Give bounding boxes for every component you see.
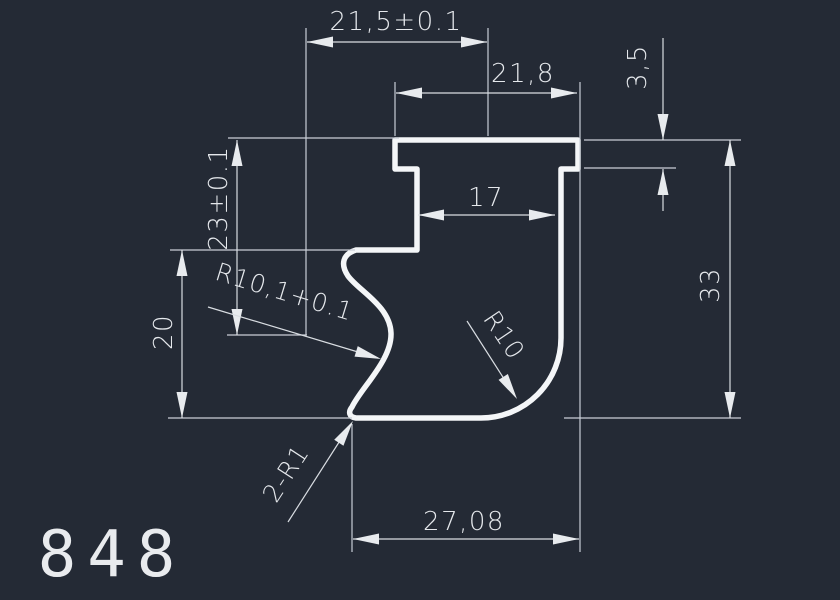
dim-top-width: 21,5±0.1 xyxy=(307,7,487,48)
dim-bottom-width-text: 27,08 xyxy=(423,507,505,537)
dim-flange-width-text: 21,8 xyxy=(491,59,555,89)
cad-model-space: 21,5±0.1 21,8 17 27,08 3,5 23±0.1 xyxy=(0,0,840,600)
dim-inner-width-text: 17 xyxy=(468,183,504,213)
dim-top-width-text: 21,5±0.1 xyxy=(329,7,462,37)
dim-lower-height-text: 20 xyxy=(149,314,179,350)
dim-flange-thickness-text: 3,5 xyxy=(623,44,653,90)
part-number: 848 xyxy=(38,518,187,592)
dim-total-height-text: 33 xyxy=(696,267,726,303)
cad-drawing-canvas: 21,5±0.1 21,8 17 27,08 3,5 23±0.1 xyxy=(0,0,840,600)
dim-left-height-text: 23±0.1 xyxy=(204,145,234,250)
